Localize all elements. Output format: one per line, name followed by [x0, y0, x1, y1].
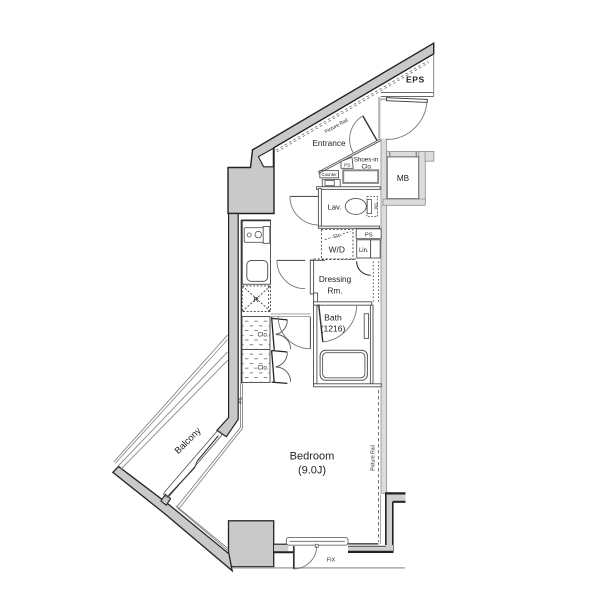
svg-text:PS: PS [365, 232, 373, 238]
svg-text:Dressing: Dressing [319, 275, 352, 284]
svg-text:R: R [253, 295, 258, 304]
svg-text:Clo.: Clo. [361, 164, 372, 171]
svg-text:Picture Rail: Picture Rail [371, 445, 377, 471]
svg-text:Lav.: Lav. [328, 203, 342, 212]
svg-text:Rm.: Rm. [327, 287, 342, 296]
svg-text:PS: PS [238, 397, 243, 403]
svg-text:Shoes-in: Shoes-in [354, 156, 379, 163]
svg-text:Lin.: Lin. [359, 248, 369, 254]
svg-text:EPS: EPS [406, 75, 425, 85]
svg-text:Entrance: Entrance [312, 138, 346, 148]
svg-text:Bath: Bath [324, 313, 342, 323]
svg-text:FIX: FIX [327, 558, 336, 564]
svg-text:W/D: W/D [329, 244, 345, 254]
svg-text:Bedroom: Bedroom [290, 451, 335, 463]
svg-text:PS: PS [344, 162, 350, 168]
svg-text:Counter: Counter [322, 172, 338, 177]
svg-text:(1216): (1216) [321, 324, 346, 334]
svg-text:MB: MB [397, 174, 410, 183]
svg-text:Clo.: Clo. [257, 365, 268, 372]
svg-text:Clo.: Clo. [257, 332, 268, 339]
svg-text:Sto.: Sto. [374, 203, 379, 210]
svg-text:(9.0J): (9.0J) [298, 465, 326, 477]
